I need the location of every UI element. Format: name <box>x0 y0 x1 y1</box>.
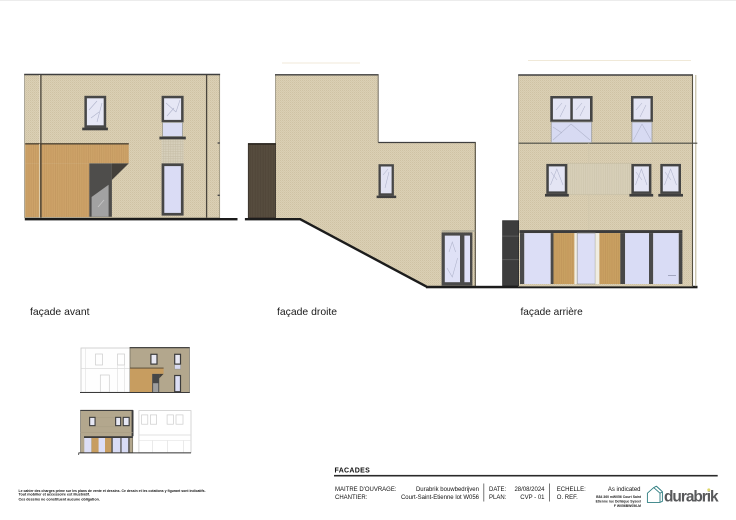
svg-text:MAITRE D'OUVRAGE:: MAITRE D'OUVRAGE: <box>335 487 397 493</box>
svg-text:DATE:: DATE: <box>489 487 507 493</box>
svg-text:B84 360 mW056 Court Saint: B84 360 mW056 Court Saint <box>596 495 642 499</box>
svg-text:CHANTIER:: CHANTIER: <box>335 495 368 501</box>
svg-text:28/08/2024: 28/08/2024 <box>514 487 545 493</box>
svg-text:Court-Saint-Etienne lot W056: Court-Saint-Etienne lot W056 <box>401 495 480 501</box>
svg-text:CVP - 01: CVP - 01 <box>520 495 545 501</box>
svg-text:façade avant: façade avant <box>30 307 90 318</box>
svg-text:F W056BW056-M: F W056BW056-M <box>614 504 641 508</box>
svg-text:Etienne rue Defalque Syseel: Etienne rue Defalque Syseel <box>596 500 641 504</box>
svg-text:durabrik: durabrik <box>664 488 719 505</box>
svg-text:Durabrik bouwbedrijven: Durabrik bouwbedrijven <box>416 487 479 493</box>
svg-text:ECHELLE:: ECHELLE: <box>557 487 586 493</box>
svg-text:PLAN:: PLAN: <box>489 495 507 501</box>
svg-text:Ces dessins ne constituent auc: Ces dessins ne constituent aucune obliga… <box>19 497 100 501</box>
svg-text:Tout mobilier et accessoire es: Tout mobilier et accessoire est illustra… <box>19 493 90 497</box>
svg-text:O. REF.: O. REF. <box>557 495 578 501</box>
svg-text:As indicated: As indicated <box>608 487 641 493</box>
svg-text:façade droite: façade droite <box>277 307 337 318</box>
svg-text:FACADES: FACADES <box>335 468 371 475</box>
svg-text:façade arrière: façade arrière <box>521 307 584 318</box>
